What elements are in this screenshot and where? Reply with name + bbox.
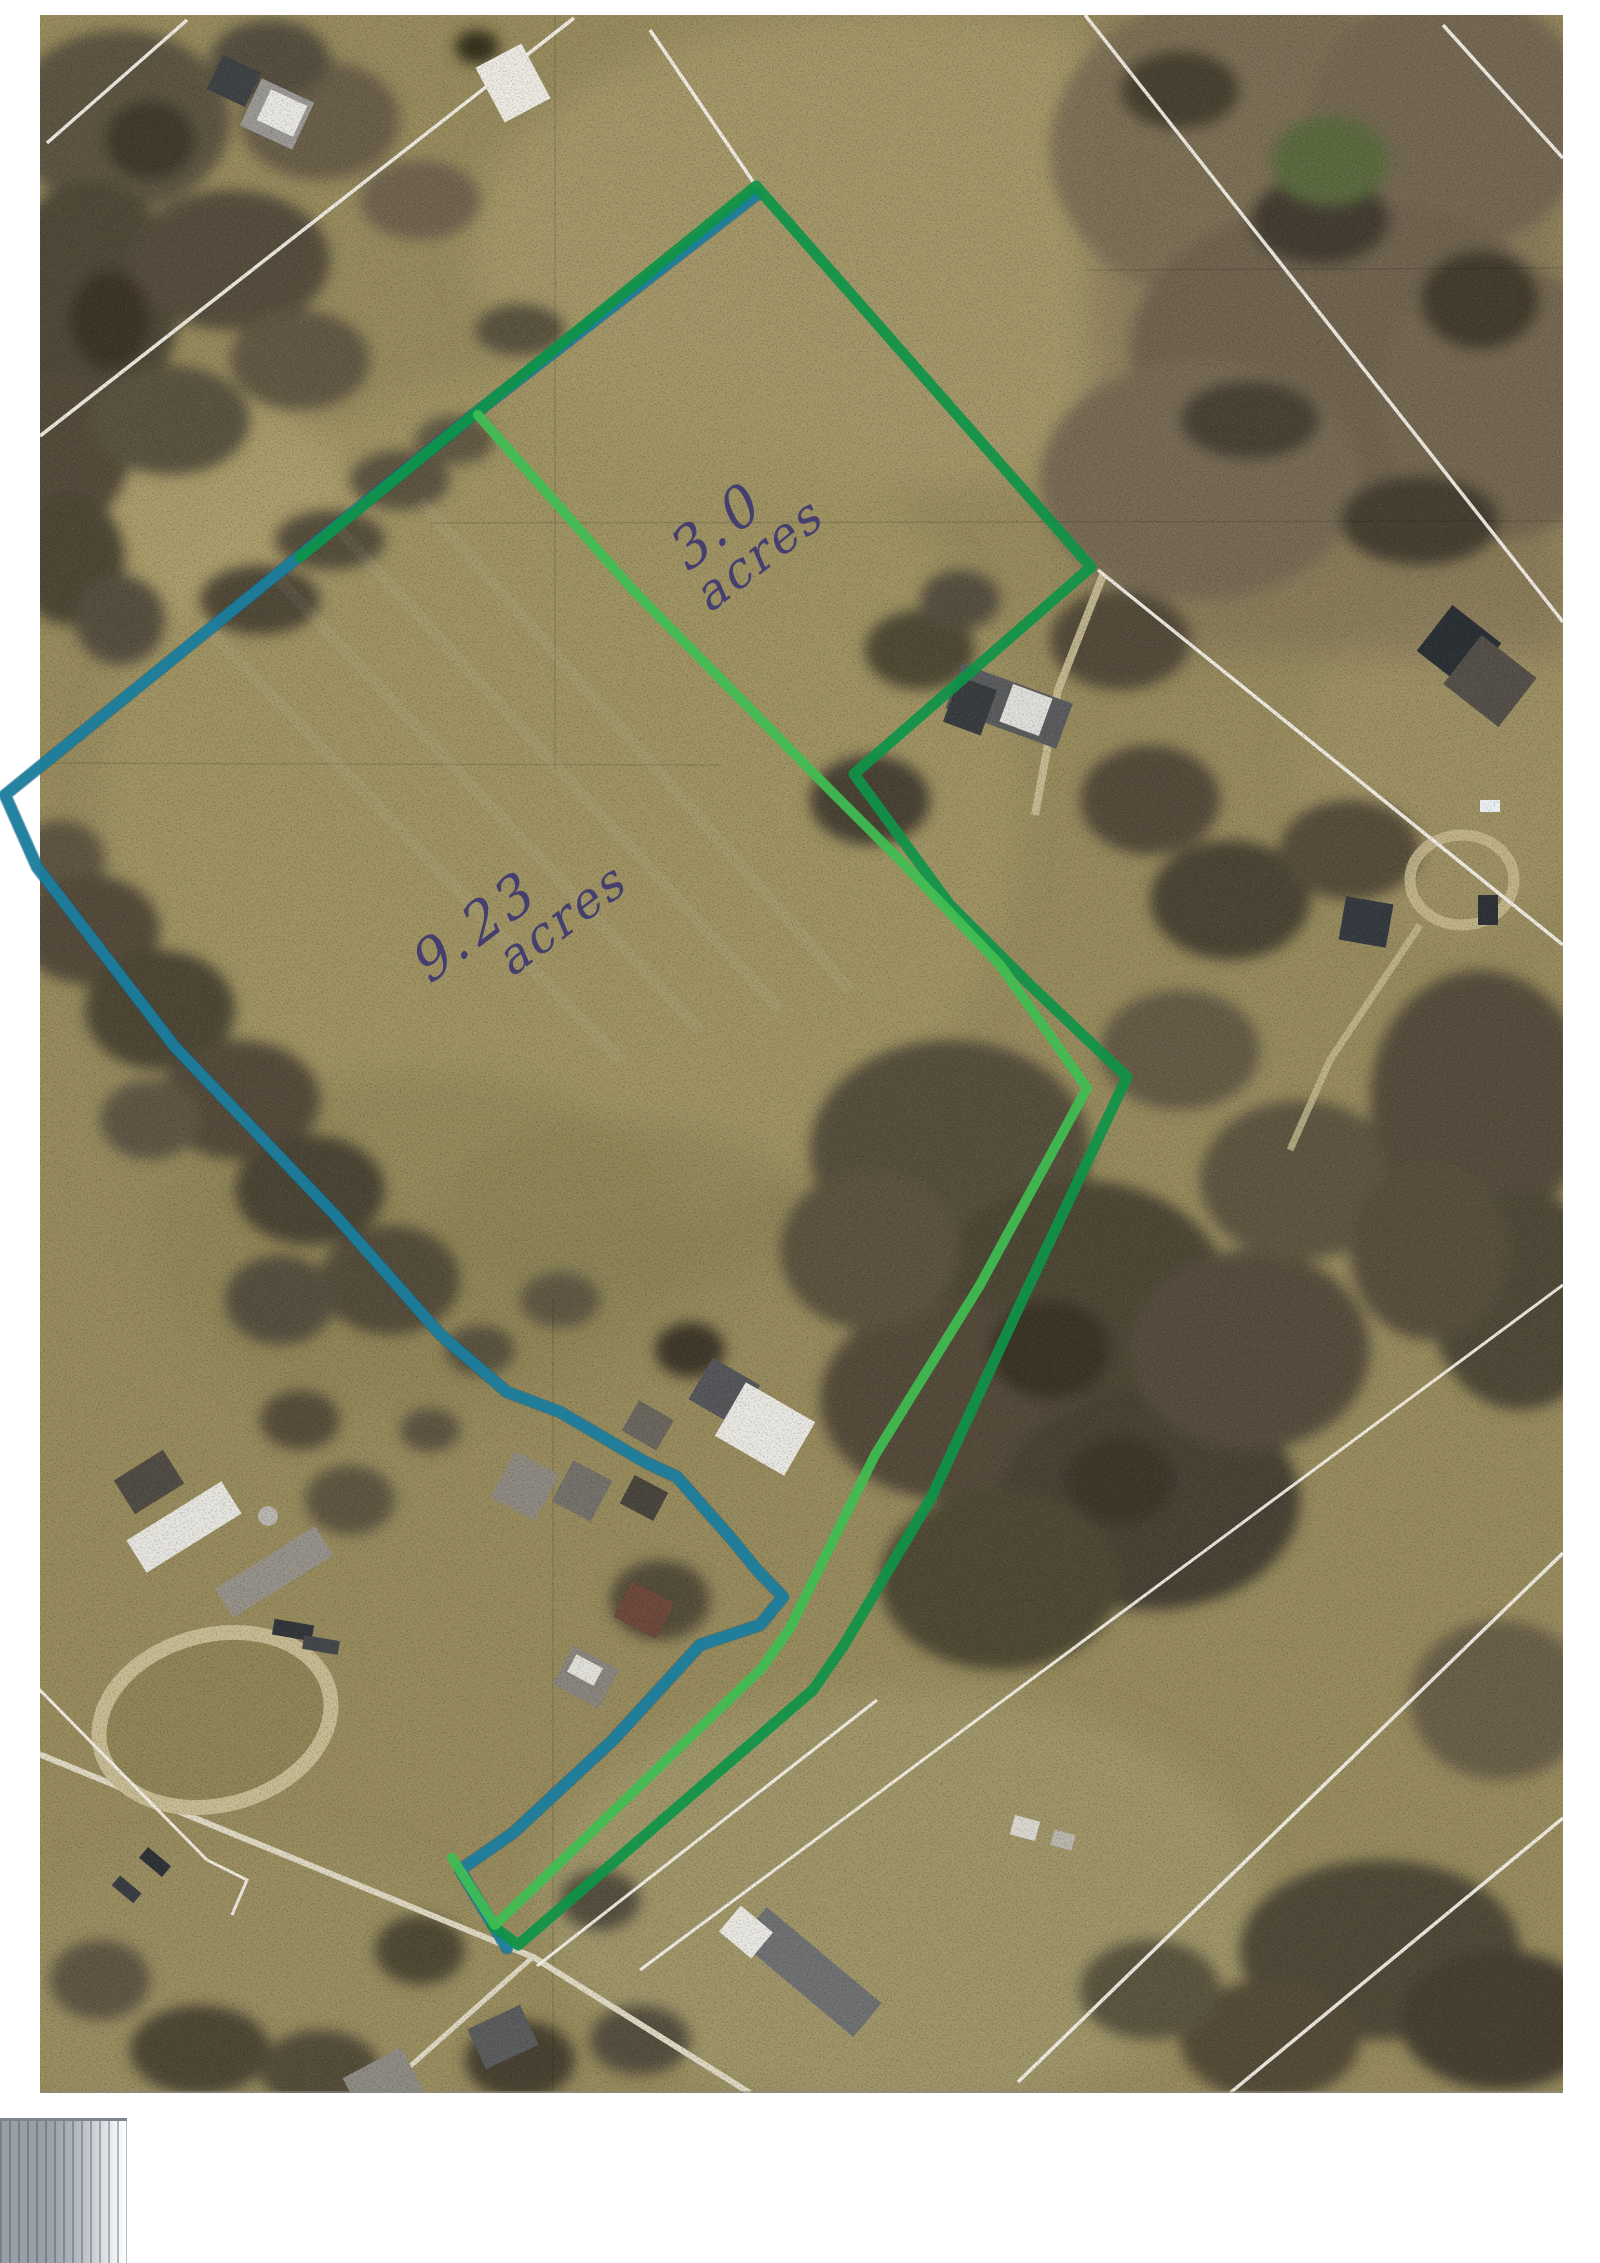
aerial-map bbox=[0, 0, 1600, 2263]
scanner-artifact-bar bbox=[0, 2118, 127, 2263]
grain-light bbox=[40, 15, 1563, 2093]
scanned-aerial-parcel-map: 3.0 acres 9.23 acres bbox=[0, 0, 1600, 2263]
aerial-photo bbox=[0, 0, 1600, 2201]
